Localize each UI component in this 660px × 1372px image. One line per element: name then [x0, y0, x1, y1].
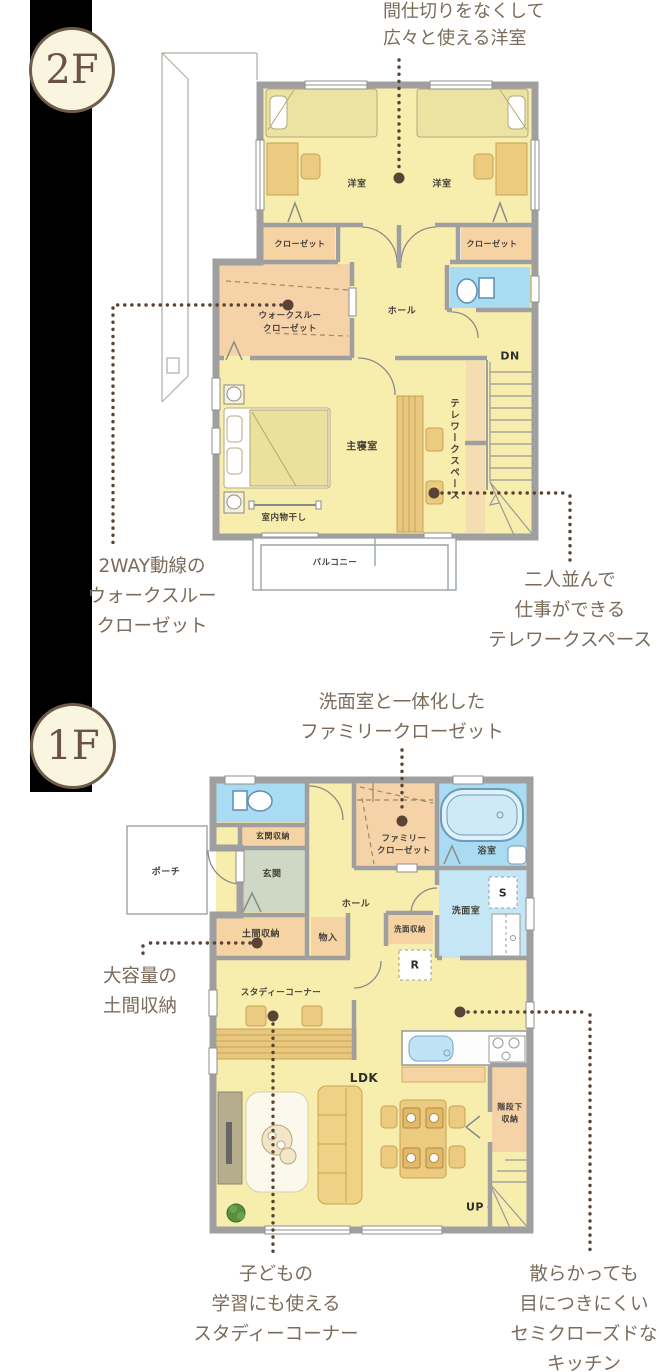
note-doma: 大容量の 土間収納 — [103, 962, 177, 1022]
master-bed-icon — [224, 408, 330, 488]
note-partition: 間仕切りをなくして 広々と使える洋室 — [383, 0, 544, 52]
label-1f-understairs-line2: 収納 — [502, 1114, 519, 1125]
label-2f-dn: DN — [500, 350, 519, 363]
note-kitchen: 散らかっても 目につきにくい セミクローズドな キッチン — [510, 1260, 657, 1372]
room-1f-entry-fill — [242, 850, 305, 912]
floor2-badge: 2F — [29, 27, 115, 113]
floorplan-page: 2F 1F 洋室 洋室 クローゼット クローゼット ウォークスルー クローゼット… — [0, 0, 660, 1372]
floor1-badge: 1F — [30, 703, 116, 789]
note-family-closet: 洗面室と一体化した ファミリークローゼット — [300, 688, 504, 748]
label-1f-up: UP — [466, 1201, 484, 1214]
label-1f-bath: 浴室 — [477, 844, 496, 857]
label-2f-master: 主寝室 — [346, 438, 378, 453]
note-wtc: 2WAY動線の ウォークスルー クローゼット — [88, 552, 217, 642]
stove-icon — [489, 1036, 525, 1062]
label-1f-doma: 土間収納 — [242, 927, 280, 940]
floor2-badge-label: 2F — [45, 47, 98, 93]
label-2f-wtc-line2: クローゼット — [263, 322, 317, 334]
label-1f-entry: 玄関 — [262, 867, 281, 880]
label-2f-bedroom-right: 洋室 — [432, 177, 451, 190]
label-1f-wash-storage: 洗面収納 — [394, 924, 426, 935]
fc-dot — [397, 816, 408, 827]
label-1f-fc-line1: ファミリー — [381, 832, 426, 844]
kitchen-counter — [402, 1031, 527, 1065]
note-telework: 二人並んで 仕事ができる テレワークスペース — [488, 566, 652, 656]
sink-icon — [409, 1036, 453, 1061]
note-study: 子どもの 学習にも使える スタディーコーナー — [193, 1260, 358, 1350]
study-dot — [268, 1011, 279, 1022]
telework-dot — [429, 488, 440, 499]
label-2f-telework: テレワークスペース — [446, 398, 460, 502]
label-2f-bedroom-left: 洋室 — [347, 177, 366, 190]
label-1f-ldk: LDK — [350, 1071, 378, 1085]
label-2f-laundry: 室内物干し — [261, 511, 306, 523]
toilet-icon-1f — [233, 791, 272, 811]
label-2f-wtc-line1: ウォークスルー — [259, 309, 322, 321]
floorplan-graphics — [0, 0, 660, 1372]
label-1f-fc-line2: クローゼット — [377, 844, 431, 856]
label-2f-closet-right: クローゼット — [467, 239, 518, 250]
tv-board-icon — [218, 1092, 242, 1184]
sofa-icon — [318, 1086, 362, 1204]
label-1f-study: スタディーコーナー — [241, 986, 321, 998]
label-1f-entry-storage: 玄関収納 — [256, 831, 290, 842]
label-1f-r-marker: R — [411, 959, 420, 972]
label-1f-wash: 洗面室 — [452, 904, 481, 917]
label-2f-hall: ホール — [388, 304, 417, 317]
kitchen-front-panel — [402, 1067, 485, 1082]
label-2f-closet-left: クローゼット — [275, 239, 326, 250]
bed-icon-right — [417, 89, 528, 137]
floor1-badge-label: 1F — [46, 723, 99, 769]
wtc-open-door-leaf — [349, 288, 356, 316]
label-1f-understairs-line1: 階段下 — [497, 1102, 523, 1113]
bed-icon-left — [266, 89, 377, 137]
label-1f-porch: ポーチ — [152, 865, 181, 878]
partition-dot — [394, 173, 405, 184]
plant-icon — [227, 1204, 245, 1222]
label-1f-s-marker: S — [499, 887, 507, 900]
kitchen-dot — [455, 1007, 466, 1018]
label-1f-mono: 物入 — [318, 931, 337, 944]
label-1f-hall: ホール — [342, 897, 371, 910]
label-2f-balcony: バルコニー — [313, 556, 358, 568]
room-2f-telework-fill — [466, 361, 485, 533]
